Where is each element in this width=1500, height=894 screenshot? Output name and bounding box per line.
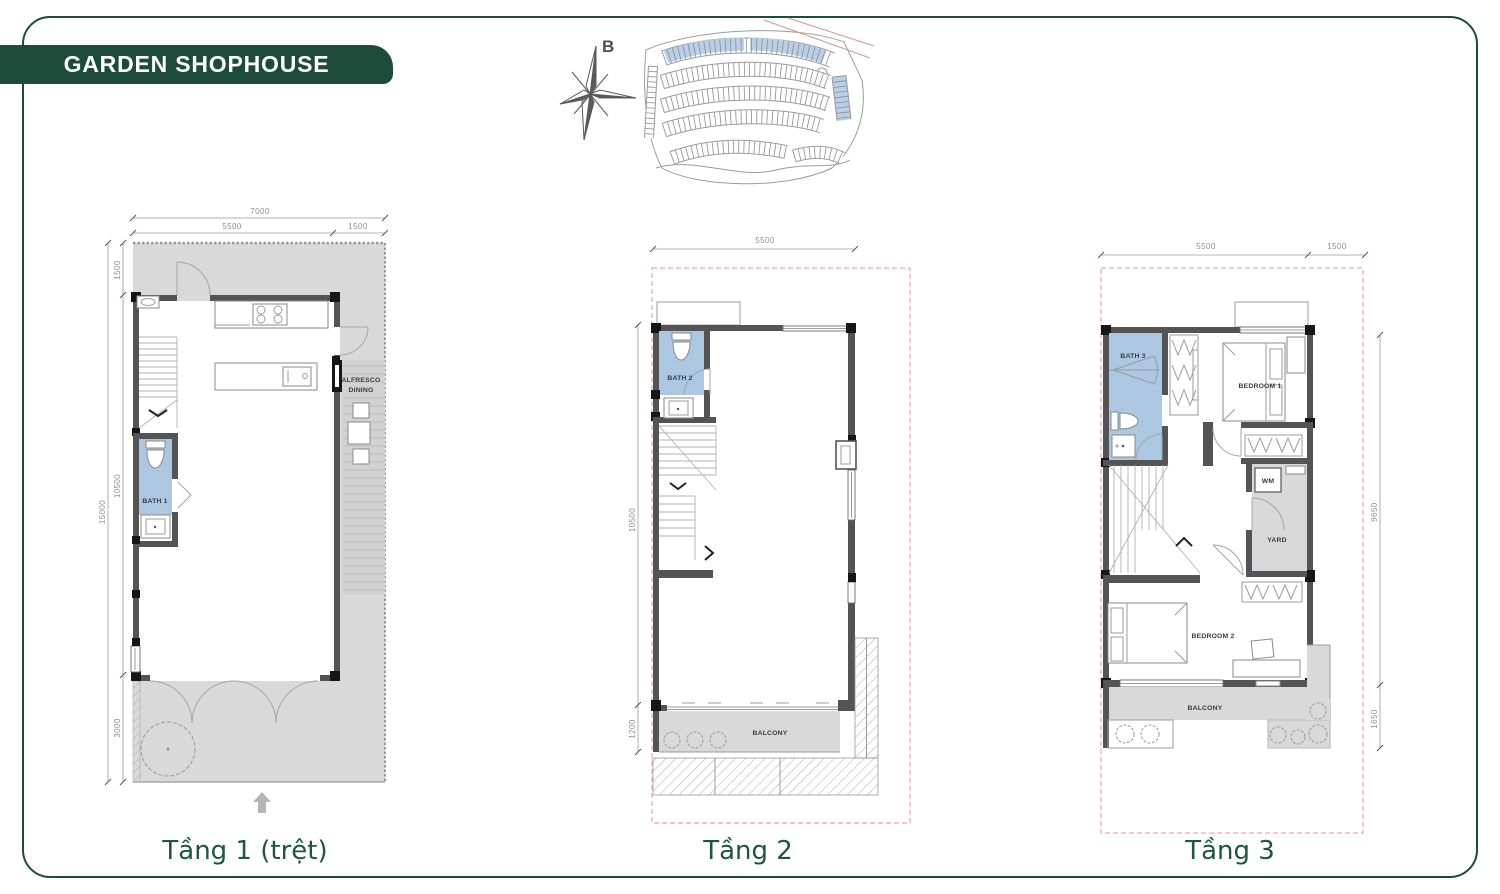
- wardrobe-hatch: [1170, 335, 1198, 415]
- bedroom-2: BEDROOM 2: [1103, 582, 1313, 692]
- floor3-caption: Tầng 3: [1080, 836, 1380, 866]
- desk-icon: [1233, 639, 1300, 677]
- bed-icon: [1108, 603, 1187, 663]
- floor2-left-dimensions: 10500 1200: [628, 322, 641, 755]
- dim-label: 10500: [628, 508, 637, 532]
- dim-label: 10500: [113, 474, 122, 498]
- wm-label: WM: [1262, 478, 1275, 485]
- floor3-top-dimensions: 5500 1500: [1098, 242, 1368, 258]
- dim-label: 5500: [1196, 242, 1216, 251]
- compass-north-label: B: [602, 37, 614, 56]
- dim-label: 3000: [113, 718, 122, 738]
- planter-icon: [1141, 725, 1159, 743]
- alfresco-label-1: ALFRESCO: [342, 377, 381, 384]
- floor1-plan: 7000 5500 1500 15000 1500 10500 3000: [95, 200, 395, 818]
- dim-label: 1500: [113, 260, 122, 280]
- ac-ledge: [836, 441, 856, 469]
- planter-box: [1108, 720, 1173, 748]
- dim-label: 5500: [755, 236, 775, 245]
- garden-area: [133, 681, 385, 782]
- highlighted-lots-right: [839, 76, 844, 120]
- wardrobe-hatch: [1242, 582, 1302, 602]
- floor1-left-dimensions: 15000 1500 10500 3000: [98, 240, 126, 785]
- laundry-yard: WM YARD: [1241, 458, 1307, 577]
- bathroom-1: BATH 1: [132, 433, 191, 547]
- site-map: [636, 18, 874, 192]
- washing-machine-icon: WM: [1255, 468, 1281, 492]
- floor1-caption: Tầng 1 (trệt): [85, 836, 405, 866]
- bed-icon: [1223, 343, 1285, 421]
- bathroom-3: BATH 3: [1103, 333, 1168, 466]
- floor2-top-dimensions: 5500: [650, 236, 858, 252]
- bath1-label: BATH 1: [142, 498, 167, 505]
- stairs: [1109, 465, 1200, 573]
- bathroom-2: BATH 2: [651, 331, 716, 423]
- balcony-label: BALCONY: [1187, 705, 1222, 712]
- dim-label: 1500: [348, 222, 368, 231]
- stairs: [659, 426, 716, 560]
- bath3-label: BATH 3: [1120, 353, 1145, 360]
- void-ledge: [1235, 302, 1308, 327]
- floor3-plan: 5500 1500 9650 1650 BATH: [1080, 230, 1400, 862]
- stairs: [139, 337, 177, 428]
- floor1-top-dimensions: 7000 5500 1500: [130, 207, 388, 236]
- floor3-right-dimensions: 9650 1650: [1370, 332, 1383, 751]
- dim-label: 9650: [1370, 502, 1379, 522]
- dim-label: 1500: [1327, 242, 1347, 251]
- bath2-label: BATH 2: [667, 375, 692, 382]
- entry-cabinet: [137, 296, 159, 308]
- dim-label: 7000: [250, 207, 270, 216]
- bedroom-1: BEDROOM 1: [1203, 337, 1313, 466]
- dim-label: 1650: [1370, 709, 1379, 729]
- stair-direction-arrow: [149, 410, 167, 416]
- kitchen-island: [215, 363, 317, 390]
- dim-label: 1200: [628, 719, 637, 739]
- page-title: GARDEN SHOPHOUSE: [64, 51, 330, 78]
- stair-direction-arrow: [1176, 538, 1192, 546]
- bedroom1-label: BEDROOM 1: [1239, 383, 1282, 390]
- alfresco-deck: ALFRESCO DINING: [342, 360, 385, 595]
- bedroom2-label: BEDROOM 2: [1192, 633, 1235, 640]
- balcony-label: BALCONY: [752, 730, 787, 737]
- balcony: BALCONY: [659, 703, 840, 752]
- yard-label: YARD: [1267, 537, 1286, 544]
- title-ribbon: GARDEN SHOPHOUSE: [0, 45, 393, 84]
- stair-direction-arrow: [670, 483, 686, 489]
- entrance-arrow-icon: [253, 792, 271, 813]
- wardrobe-hatch: [1245, 435, 1302, 456]
- void-ledge: [657, 302, 740, 325]
- alfresco-label-2: DINING: [349, 387, 374, 394]
- bath-sink-icon: [1112, 435, 1135, 457]
- hall-door: [1213, 545, 1243, 575]
- sink-icon: [283, 367, 311, 386]
- stair-half-wall: [653, 570, 713, 578]
- stair-direction-arrow: [705, 546, 713, 560]
- dim-label: 5500: [222, 222, 242, 231]
- left-window: [131, 638, 140, 672]
- nightstand-icon: [1287, 337, 1305, 373]
- fence-hatch: [133, 681, 140, 782]
- kitchen-counter: [215, 301, 328, 328]
- floor2-plan: 5500 10500 1200: [620, 230, 920, 830]
- planter-icon: [1116, 725, 1134, 743]
- site-map-lot-rows: [649, 44, 844, 158]
- stair-wall: [1103, 575, 1200, 583]
- floor2-caption: Tầng 2: [598, 836, 898, 866]
- dim-label: 15000: [98, 500, 107, 524]
